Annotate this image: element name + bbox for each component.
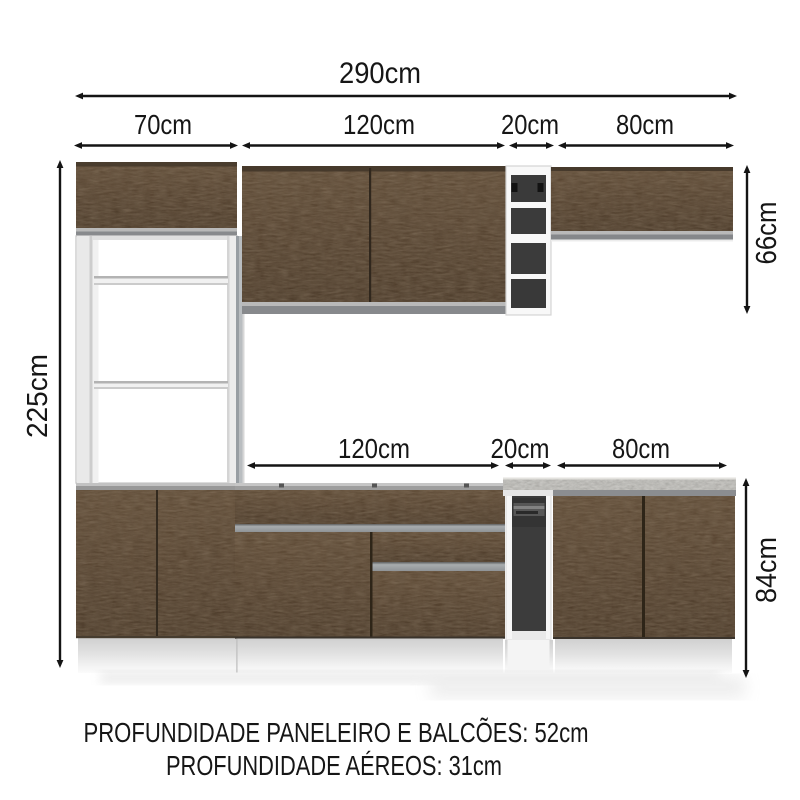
svg-text:80cm: 80cm [612, 433, 670, 464]
svg-text:20cm: 20cm [491, 433, 550, 464]
svg-text:20cm: 20cm [501, 109, 559, 140]
svg-text:PROFUNDIDADE AÉREOS: 31cm: PROFUNDIDADE AÉREOS: 31cm [166, 750, 502, 781]
svg-text:70cm: 70cm [134, 109, 192, 140]
svg-text:84cm: 84cm [751, 537, 783, 603]
svg-text:290cm: 290cm [339, 57, 421, 90]
svg-text:225cm: 225cm [22, 354, 54, 438]
svg-text:66cm: 66cm [751, 202, 783, 265]
svg-text:120cm: 120cm [338, 433, 410, 464]
svg-text:80cm: 80cm [616, 109, 674, 140]
svg-text:120cm: 120cm [343, 109, 415, 140]
svg-text:PROFUNDIDADE PANELEIRO E BALCÕ: PROFUNDIDADE PANELEIRO E BALCÕES: 52cm [84, 717, 589, 748]
